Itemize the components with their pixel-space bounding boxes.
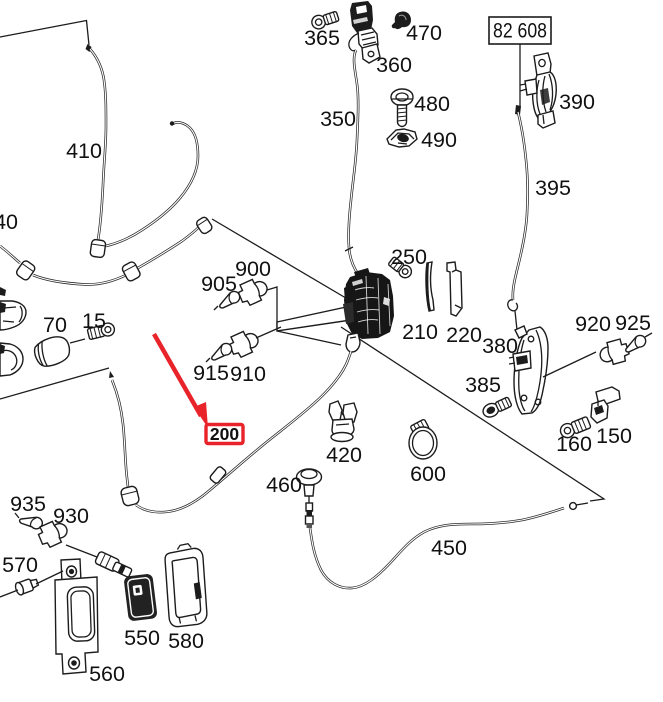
svg-text:15: 15 xyxy=(82,309,106,333)
svg-text:580: 580 xyxy=(168,629,204,653)
svg-text:420: 420 xyxy=(326,443,362,467)
svg-text:910: 910 xyxy=(230,362,266,386)
svg-text:395: 395 xyxy=(535,176,571,200)
svg-text:925: 925 xyxy=(615,311,651,335)
svg-text:600: 600 xyxy=(410,462,446,486)
svg-text:380: 380 xyxy=(482,334,518,358)
svg-text:915: 915 xyxy=(193,361,229,385)
svg-text:490: 490 xyxy=(421,128,457,152)
svg-text:82 608: 82 608 xyxy=(493,20,547,43)
svg-text:470: 470 xyxy=(406,21,442,45)
svg-text:560: 560 xyxy=(89,662,125,686)
svg-text:905: 905 xyxy=(201,272,237,296)
svg-text:920: 920 xyxy=(575,312,611,336)
svg-text:160: 160 xyxy=(556,432,592,456)
svg-text:40: 40 xyxy=(0,210,18,234)
svg-text:550: 550 xyxy=(124,626,160,650)
svg-text:150: 150 xyxy=(596,424,632,448)
svg-text:350: 350 xyxy=(320,107,356,131)
svg-text:460: 460 xyxy=(266,473,302,497)
svg-text:210: 210 xyxy=(402,320,438,344)
svg-text:410: 410 xyxy=(66,139,102,163)
svg-text:250: 250 xyxy=(391,245,427,269)
svg-text:930: 930 xyxy=(53,504,89,528)
svg-text:70: 70 xyxy=(43,313,67,337)
svg-text:200: 200 xyxy=(210,424,239,444)
svg-text:385: 385 xyxy=(465,373,501,397)
svg-text:570: 570 xyxy=(2,553,38,577)
svg-text:450: 450 xyxy=(431,536,467,560)
svg-text:220: 220 xyxy=(446,323,482,347)
svg-text:360: 360 xyxy=(376,53,412,77)
svg-text:935: 935 xyxy=(10,492,46,516)
svg-text:390: 390 xyxy=(559,90,595,114)
svg-text:900: 900 xyxy=(235,257,271,281)
svg-text:480: 480 xyxy=(414,92,450,116)
svg-text:365: 365 xyxy=(304,26,340,50)
